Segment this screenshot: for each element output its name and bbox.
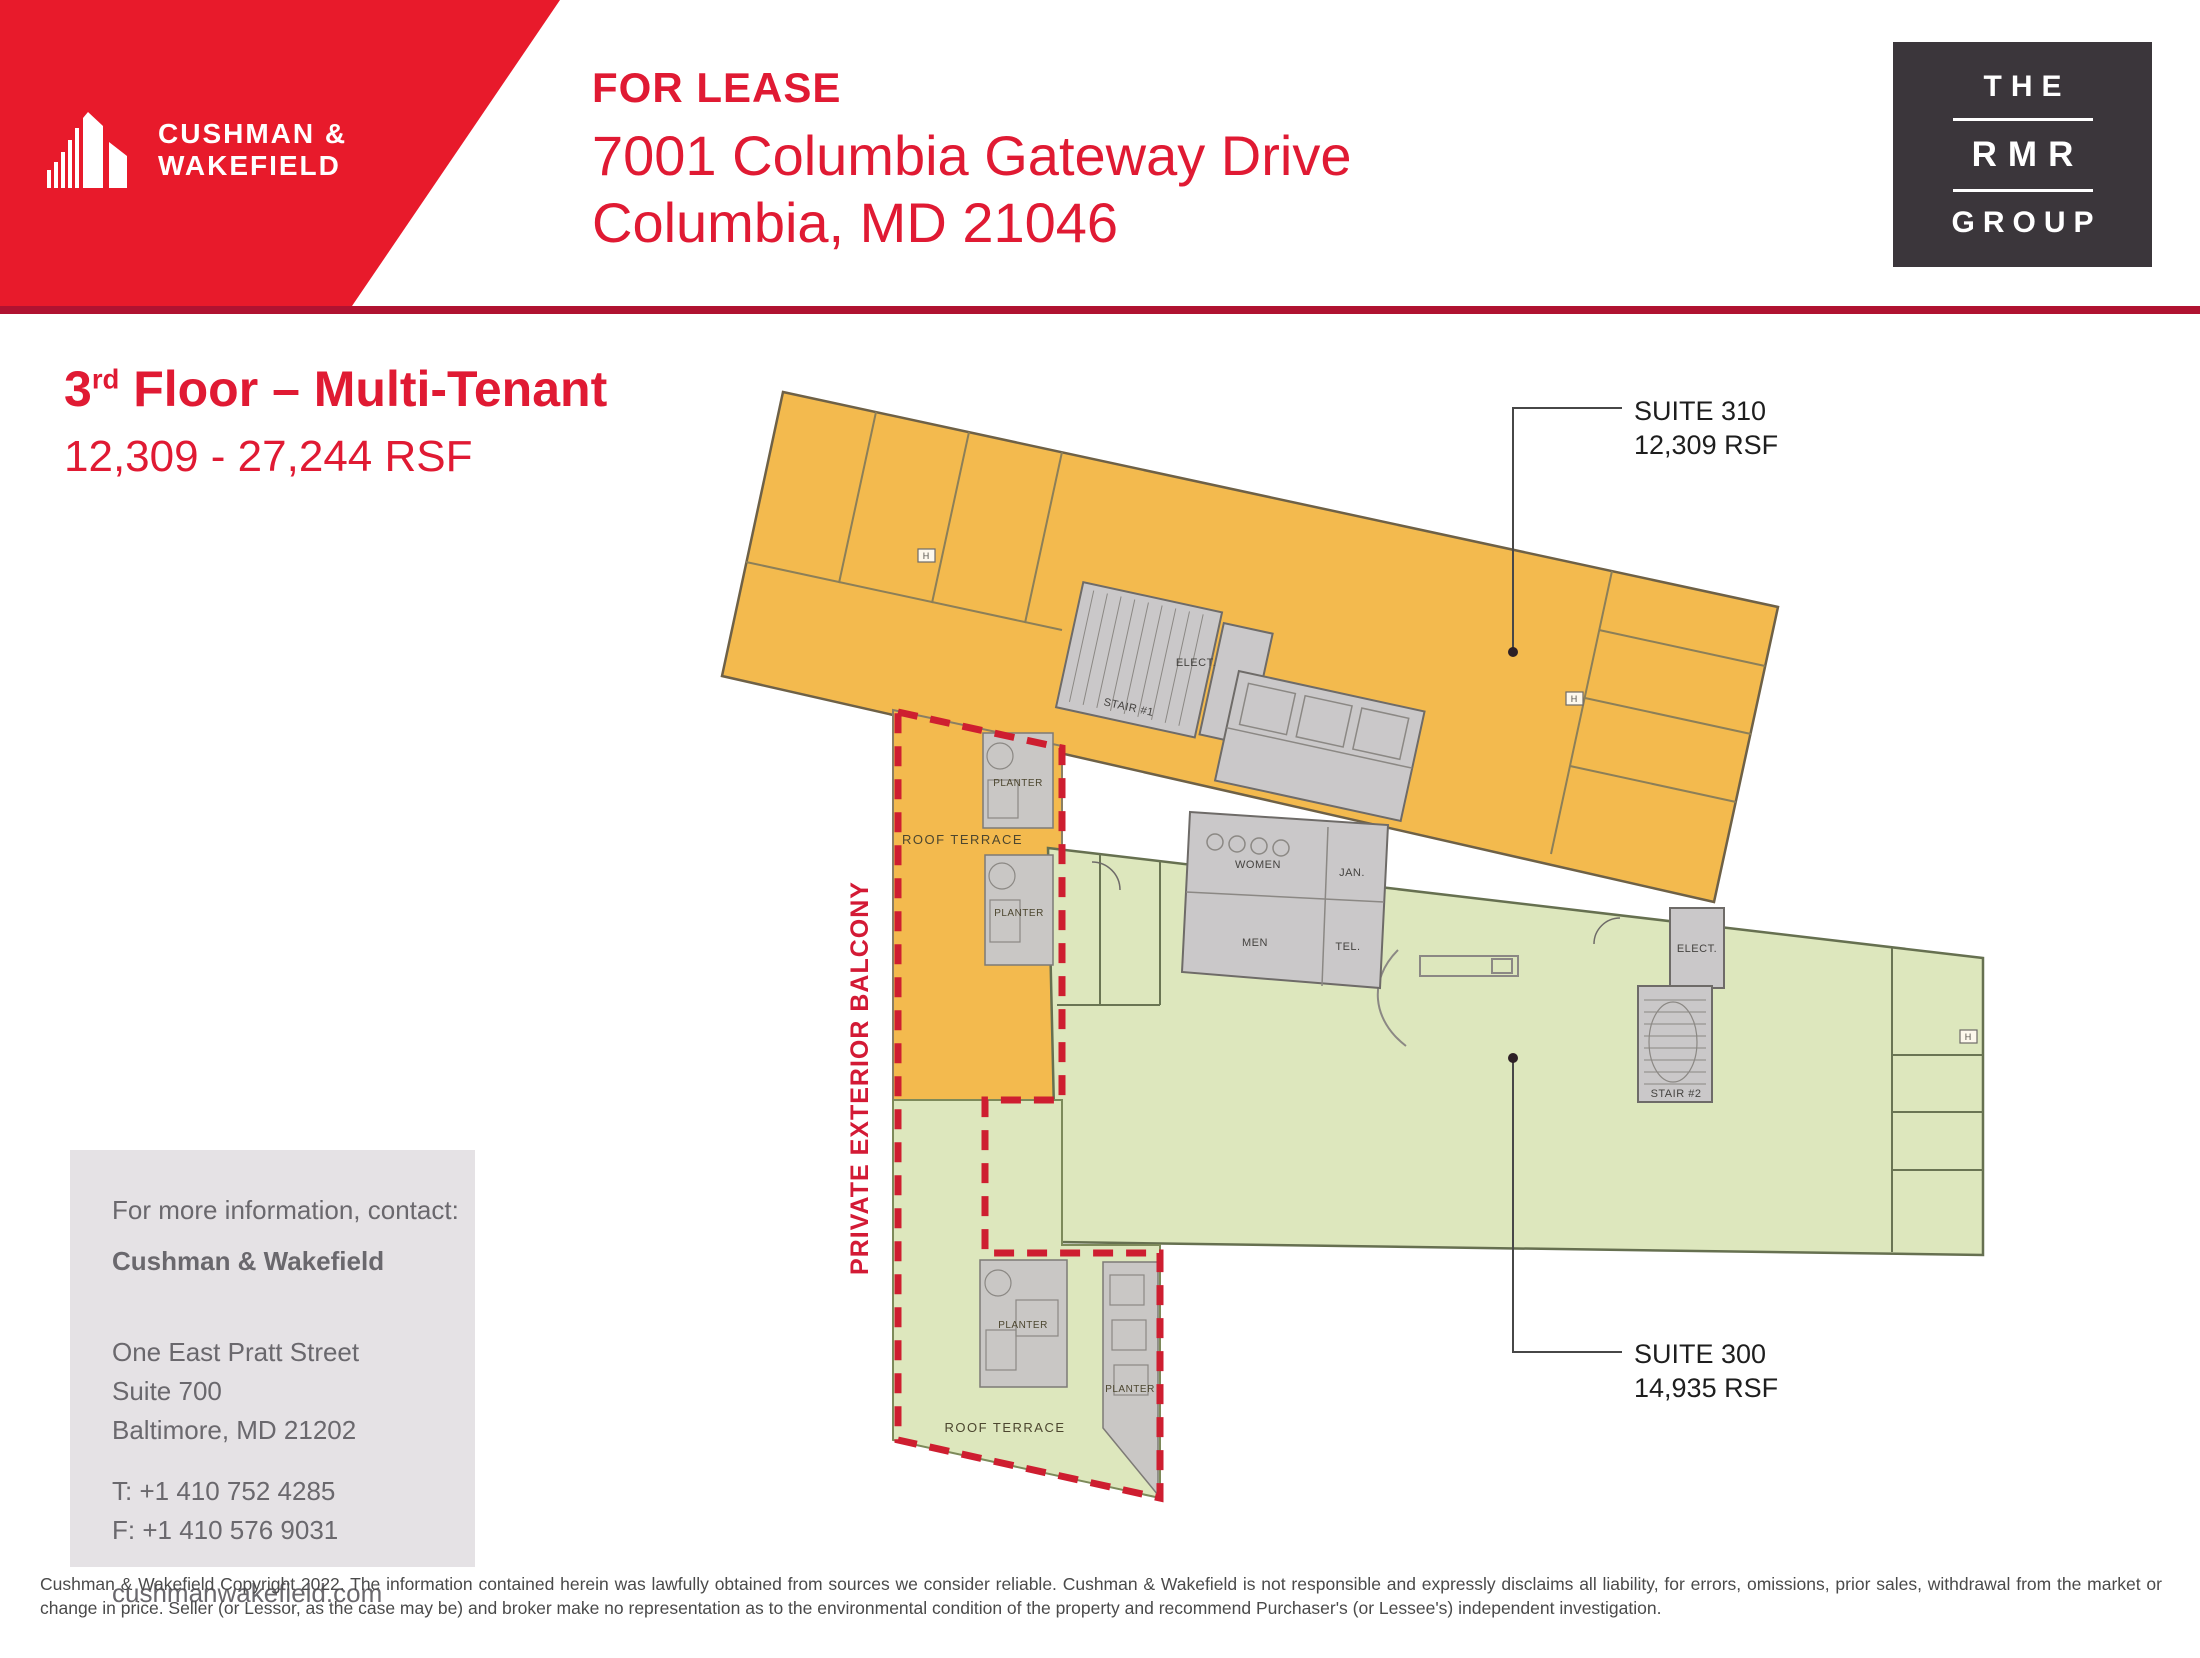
restroom-core: WOMEN JAN. MEN TEL. — [1182, 812, 1388, 988]
elect1-label: ELECT. — [1176, 657, 1216, 669]
leader-dot — [1508, 1053, 1518, 1063]
rmr-logo-the: THE — [1975, 70, 2071, 104]
flyer-page: STAIR #1 ELECT. WOMEN JAN. MEN TEL. — [0, 0, 2200, 1658]
lease-headline: FOR LEASE 7001 Columbia Gateway Drive Co… — [592, 64, 1351, 256]
floor-ordinal: rd — [92, 363, 120, 394]
roof-terrace-label-1: ROOF TERRACE — [902, 832, 1023, 847]
planter-label-1: PLANTER — [993, 778, 1043, 789]
suite-310-name: SUITE 310 — [1634, 396, 1766, 426]
floor-title: 3rd Floor – Multi-Tenant 12,309 - 27,244… — [64, 360, 607, 482]
jan-label: JAN. — [1339, 867, 1365, 879]
rsf-range: 12,309 - 27,244 RSF — [64, 432, 607, 482]
contact-box: For more information, contact: Cushman &… — [70, 1150, 475, 1567]
legal-disclaimer: Cushman & Wakefield Copyright 2022. The … — [40, 1572, 2162, 1620]
contact-address-line2: Suite 700 — [112, 1375, 475, 1408]
stair2-label: STAIR #2 — [1651, 1088, 1702, 1100]
h-marker: H — [1571, 694, 1578, 704]
h-marker: H — [923, 551, 930, 561]
contact-fax: F: +1 410 576 9031 — [112, 1514, 475, 1547]
cushman-wakefield-logo-icon — [47, 106, 147, 188]
roof-terrace-label-2: ROOF TERRACE — [944, 1420, 1065, 1435]
rmr-logo-rmr: RMR — [1961, 135, 2085, 175]
leader-dot — [1508, 647, 1518, 657]
floor-title-rest: Floor – Multi-Tenant — [119, 361, 607, 417]
women-label: WOMEN — [1235, 859, 1281, 871]
contact-intro: For more information, contact: — [112, 1194, 475, 1227]
floor-number: 3 — [64, 361, 92, 417]
header-rule — [0, 306, 2200, 314]
address-line2: Columbia, MD 21046 — [592, 189, 1351, 256]
for-lease-label: FOR LEASE — [592, 64, 1351, 112]
planter-label-2: PLANTER — [994, 908, 1044, 919]
private-exterior-balcony-label: PRIVATE EXTERIOR BALCONY — [846, 881, 874, 1275]
planter-label-3: PLANTER — [998, 1320, 1048, 1331]
floor-title-line: 3rd Floor – Multi-Tenant — [64, 360, 607, 418]
suite-310-rsf: 12,309 RSF — [1634, 430, 1778, 460]
tel-label: TEL. — [1335, 941, 1360, 953]
contact-address: One East Pratt Street Suite 700 Baltimor… — [112, 1336, 475, 1447]
h-marker: H — [1965, 1032, 1972, 1042]
property-address: 7001 Columbia Gateway Drive Columbia, MD… — [592, 122, 1351, 256]
contact-phone: T: +1 410 752 4285 — [112, 1475, 475, 1508]
men-label: MEN — [1242, 937, 1268, 949]
cw-wordmark-line1: CUSHMAN & — [158, 118, 347, 150]
rmr-logo-group: GROUP — [1943, 206, 2101, 240]
rmr-logo-divider — [1953, 189, 2093, 192]
suite-300-name: SUITE 300 — [1634, 1339, 1766, 1369]
elect2-label: ELECT. — [1677, 943, 1717, 955]
address-line1: 7001 Columbia Gateway Drive — [592, 122, 1351, 189]
rmr-group-logo: THE RMR GROUP — [1893, 42, 2152, 267]
cw-wordmark-line2: WAKEFIELD — [158, 150, 347, 182]
contact-company: Cushman & Wakefield — [112, 1245, 475, 1278]
suite-300-area — [893, 848, 1983, 1498]
planter-label-4: PLANTER — [1105, 1384, 1155, 1395]
rmr-logo-divider — [1953, 118, 2093, 121]
cushman-wakefield-wordmark: CUSHMAN & WAKEFIELD — [158, 118, 347, 182]
contact-phones: T: +1 410 752 4285 F: +1 410 576 9031 — [112, 1475, 475, 1547]
contact-address-line3: Baltimore, MD 21202 — [112, 1414, 475, 1447]
suite-300-rsf: 14,935 RSF — [1634, 1373, 1778, 1403]
contact-address-line1: One East Pratt Street — [112, 1336, 475, 1369]
